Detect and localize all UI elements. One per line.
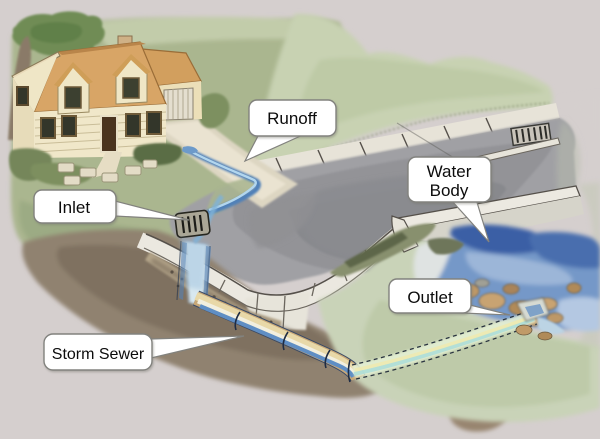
svg-text:Water: Water	[427, 162, 472, 181]
svg-text:Storm Sewer: Storm Sewer	[52, 346, 145, 363]
svg-text:Runoff: Runoff	[267, 109, 317, 128]
svg-text:Outlet: Outlet	[407, 288, 453, 307]
svg-text:Inlet: Inlet	[58, 198, 90, 217]
svg-text:Body: Body	[430, 181, 469, 200]
